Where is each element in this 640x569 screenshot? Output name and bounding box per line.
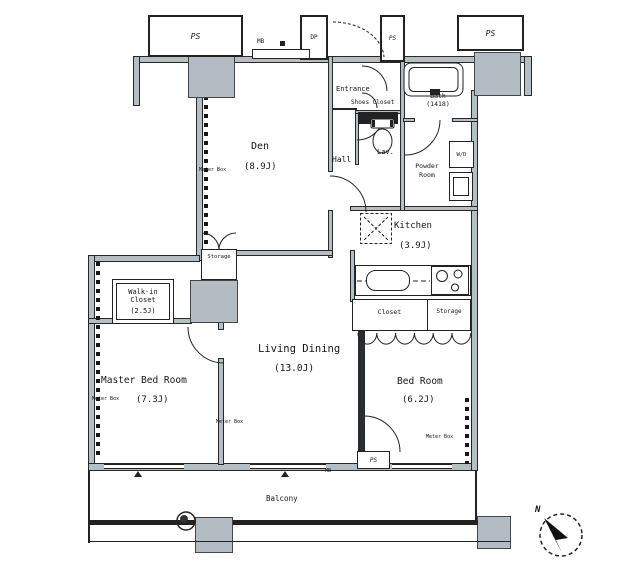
wall-wic-north [88, 255, 200, 262]
wall-master-stub [218, 322, 224, 330]
master-bedroom-label: Master Bed Room [101, 376, 187, 386]
wall-living-bedroom [358, 328, 365, 455]
den-storage-box: Storage [201, 249, 237, 280]
meter-box-tag: Meter Box [199, 168, 226, 173]
mail-mark-icon [280, 41, 285, 46]
living-dining-label: Living Dining [258, 344, 340, 355]
closet-divider [427, 300, 428, 330]
fridge-space-icon [361, 214, 392, 244]
wic-label-1: Walk-in [128, 288, 158, 296]
north-label: N [535, 506, 540, 515]
bedroom-label: Bed Room [397, 377, 443, 387]
shoes-closet-label: Shoes Closet [351, 100, 394, 106]
meter-box-label: MB [257, 39, 264, 45]
wic-size: (2.5J) [130, 307, 155, 315]
balcony-left-edge [88, 470, 90, 543]
wic-label-2: Closet [130, 296, 155, 304]
bath-size: (1418) [412, 101, 464, 108]
balcony-rail-left [88, 520, 195, 525]
pillar-top-left [188, 52, 235, 98]
shoe-cabinet-icon [358, 112, 398, 124]
wall-bath-south-b [452, 118, 478, 122]
pillar-balcony-left [195, 517, 233, 553]
pipe-space-box: PS [148, 15, 243, 57]
meter-box-tag: Meter Box [426, 435, 453, 440]
entrance-door-arc [333, 22, 384, 57]
pillar-top-right [474, 52, 521, 96]
pipe-space-box: PS [357, 451, 390, 469]
wall-topright-stub [524, 56, 532, 96]
hatch-bedroom-wall [465, 398, 469, 464]
bath-label: Bath [412, 93, 464, 100]
entrance-label: Entrance [336, 86, 370, 93]
bedroom-size: (6.2J) [402, 396, 435, 405]
window-master [104, 464, 184, 469]
walk-in-closet-inner: Walk-in Closet (2.5J) [116, 283, 170, 320]
closet-scallops-icon [358, 333, 471, 344]
wall-bath-south-a [403, 118, 415, 122]
wall-bath-west [400, 56, 405, 211]
wall-west [88, 255, 95, 470]
pipe-space-box: PS [457, 15, 524, 51]
pipe-space-box: PS [380, 15, 405, 62]
floorplan: PS DP PS PS MB W/D Storage Walk-in Close… [0, 0, 640, 569]
living-dining-size: (13.0J) [274, 364, 314, 374]
door-arc [364, 416, 400, 452]
pipe-space-label: PS [389, 35, 396, 42]
wall-shoes-divider [333, 108, 357, 110]
window-living [250, 464, 326, 469]
storage-label: Storage [427, 309, 471, 315]
pillar-balcony-right [477, 516, 511, 549]
washing-machine-icon [449, 172, 473, 201]
door-arc [405, 120, 440, 155]
kitchen-counter [355, 265, 471, 296]
kitchen-label: Kitchen [394, 222, 432, 231]
vent-marker [281, 471, 289, 477]
window-bedroom [392, 464, 452, 469]
washer-dryer-box: W/D [449, 141, 474, 168]
hatch-den-wall [204, 96, 208, 254]
pipe-space-label: PS [191, 32, 201, 41]
den-storage-label: Storage [207, 254, 230, 260]
den-label: Den [251, 142, 269, 152]
wall-wic-south-b [172, 318, 192, 324]
balcony-label: Balcony [266, 495, 298, 503]
closet-label: Closet [352, 309, 427, 316]
lav-label: Lav. [377, 149, 394, 156]
vent-marker [134, 471, 142, 477]
den-size: (8.9J) [244, 163, 277, 172]
kitchen-size: (3.9J) [399, 242, 432, 251]
meter-box-tag: Meter Box [92, 397, 119, 402]
hatch-west-wall [96, 262, 100, 458]
meter-box-niche [252, 49, 310, 59]
pipe-space-label: PS [370, 457, 377, 464]
wall-powder-south [350, 206, 478, 211]
wall-master-living [218, 358, 224, 465]
duct-pipe-label: DP [310, 34, 317, 41]
meter-box-small-label: MB [325, 469, 331, 474]
balcony-rail-right [233, 520, 478, 525]
powder-room-label-2: Room [406, 172, 448, 179]
balcony-right-edge [475, 471, 477, 521]
master-bedroom-size: (7.3J) [136, 396, 169, 405]
wall-living-north [236, 250, 333, 256]
pillar-center [190, 280, 238, 323]
balcony-slab-edge [88, 541, 510, 542]
hall-label: Hall [332, 156, 351, 164]
wall-left-stub [133, 56, 140, 106]
washer-dryer-label: W/D [457, 152, 467, 158]
powder-room-label-1: Powder [406, 163, 448, 170]
north-arrow-icon [540, 514, 582, 556]
meter-box-tag: Meter Box [216, 420, 243, 425]
pipe-space-label: PS [486, 29, 496, 38]
